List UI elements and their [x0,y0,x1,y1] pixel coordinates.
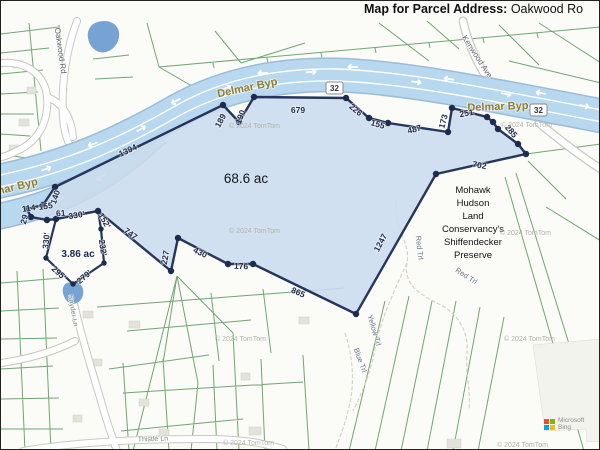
parcel-map-window: Map for Parcel Address: Oakwood Ro [0,0,600,450]
map-label-shield-19: 32 [330,84,339,93]
map-label-edge-24: 679 [291,105,305,115]
page-title: Map for Parcel Address: Oakwood Ro [364,2,583,16]
map-label-edge-40: 114 [21,202,36,214]
map-label-edge-43: 330' [68,209,86,221]
map-label-preserve-9: Mohawk [455,185,491,196]
map-label-edge-34: 176 [234,261,249,271]
map-label-road-olive-1: Delmar Byp [467,100,529,114]
map-label-copy-55: © 2024 TomTom [504,335,555,343]
map-label-trail-18: Blue Trl [352,347,369,374]
microsoft-logo-icon [544,419,555,430]
map-label-preserve-14: Preserve [454,250,492,261]
map-label-copy-56: © 2024 TomTom [497,441,548,449]
map-canvas[interactable]: Delmar BypDelmar Bypmar BypKenwood AveOa… [1,1,600,450]
map-label-preserve-11: Land [462,211,483,222]
map-label-trail-15: Red Trl [414,235,426,260]
bing-product: Bing [558,424,571,431]
map-label-street-5: Thistle Ln [138,435,169,443]
map-label-edge-48: 330' [40,232,51,249]
map-label-copy-52: © 2024 TomTom [223,439,274,447]
map-label-area-main-7: 68.6 ac [224,171,269,186]
map-label-copy-50: © 2024 TomTom [229,227,280,235]
map-label-edge-31: 702 [472,159,488,171]
map-label-area-small-8: 3.86 ac [61,249,95,260]
map-label-trail-16: Red Trl [454,266,479,287]
map-label-copy-54: © 2024 TomTom [500,229,551,237]
map-label-preserve-12: Conservancy's [442,224,504,235]
bing-brand: Microsoft [558,417,584,424]
bing-logo-text: Microsoft Bing [558,417,584,431]
map-label-copy-49: © 2024 TomTom [229,122,280,130]
map-label-copy-53: © 2024 TomTom [501,121,552,129]
bing-logo[interactable]: Microsoft Bing [544,417,584,431]
map-label-edge-45: 232' [97,239,109,256]
page-title-address: Oakwood Ro [507,2,583,16]
map-label-preserve-10: Hudson [457,198,490,209]
map-label-preserve-13: Shiffendecker [444,237,502,248]
map-label-copy-51: © 2024 TomTom [215,335,266,343]
map-label-shield-20: 32 [534,106,543,115]
page-title-label: Map for Parcel Address: [364,2,507,16]
map-label-edge-39: 155 [38,200,54,212]
map-label-edge-42: 61 [56,208,67,219]
blue-trail [335,333,352,450]
map-label-road-gray-4: Oakwood Rd [53,27,68,74]
